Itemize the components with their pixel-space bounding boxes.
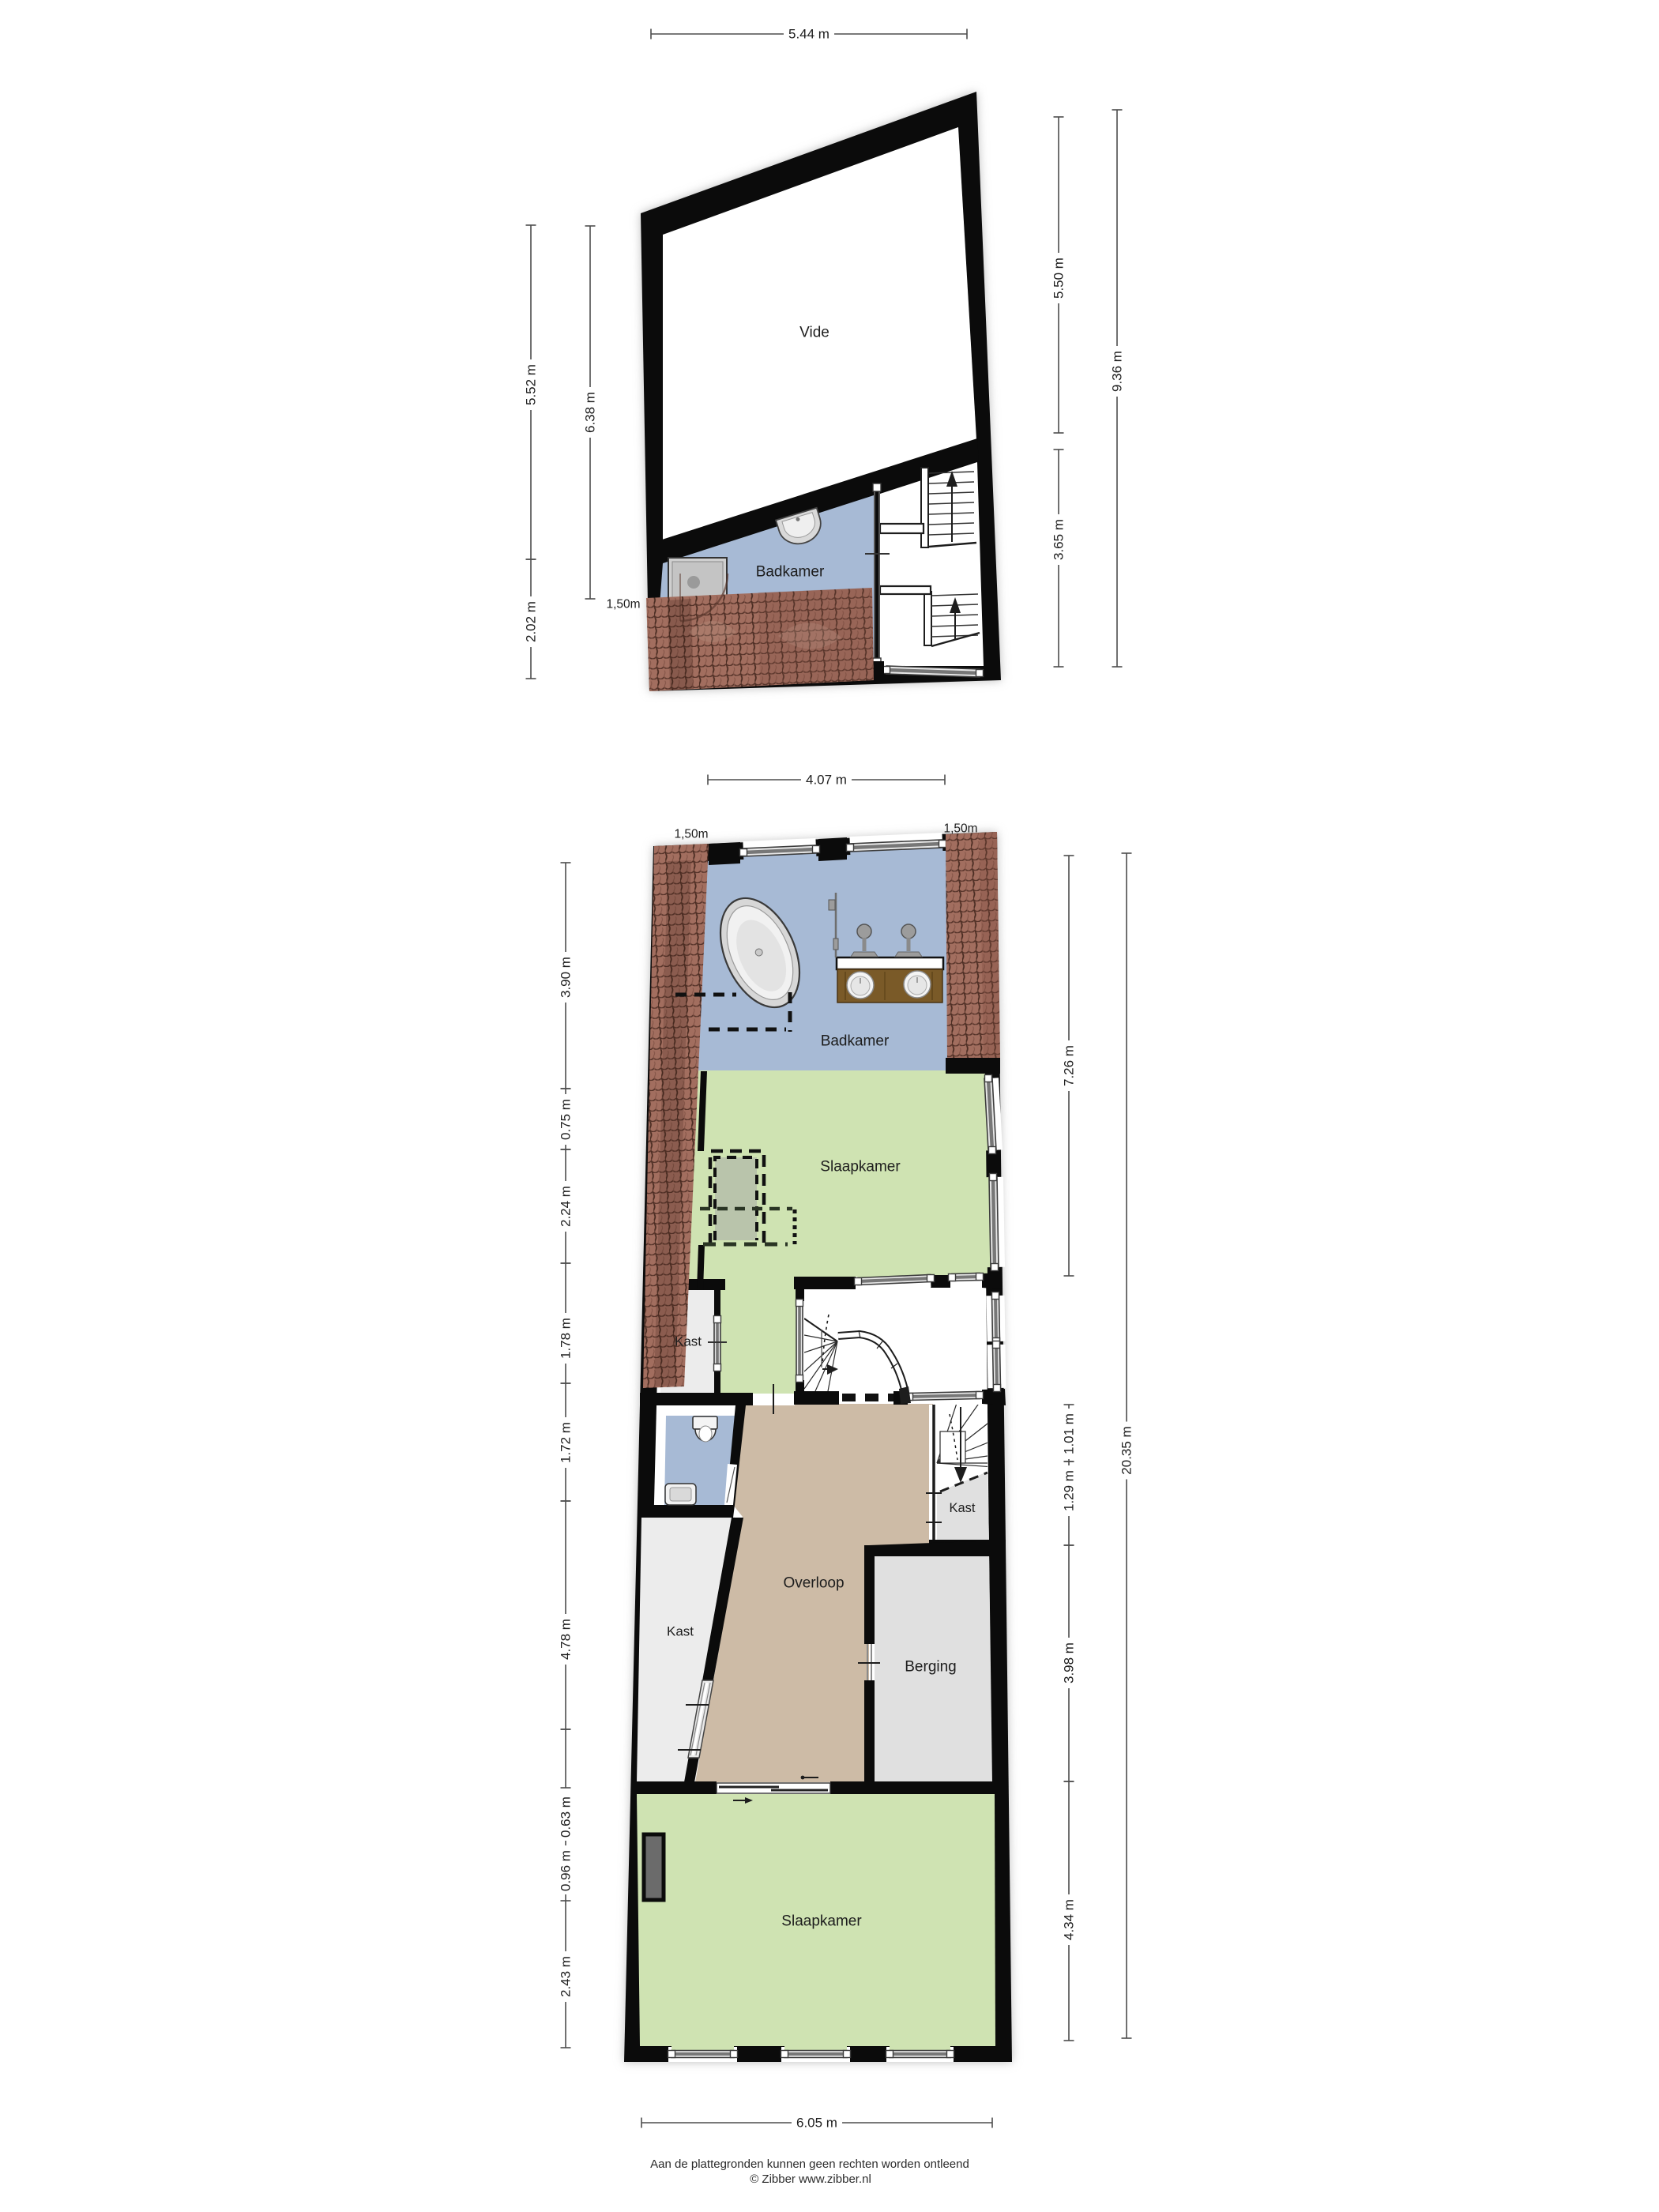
svg-text:Berging: Berging — [905, 1659, 957, 1676]
svg-text:5.52 m: 5.52 m — [524, 364, 539, 405]
svg-text:Vide: Vide — [799, 325, 829, 341]
svg-text:1,50m: 1,50m — [674, 828, 708, 841]
svg-text:Slaapkamer: Slaapkamer — [781, 1913, 862, 1930]
svg-text:3.98 m: 3.98 m — [1062, 1642, 1077, 1683]
svg-text:4.07 m: 4.07 m — [806, 773, 847, 788]
svg-text:Overloop: Overloop — [783, 1575, 844, 1592]
svg-text:0.63 m: 0.63 m — [559, 1796, 574, 1838]
svg-text:1,50m: 1,50m — [943, 822, 977, 836]
svg-text:2.43 m: 2.43 m — [559, 1956, 574, 1997]
svg-text:1.72 m: 1.72 m — [559, 1422, 574, 1463]
svg-text:© Zibber www.zibber.nl: © Zibber www.zibber.nl — [750, 2172, 871, 2186]
svg-text:1.01 m: 1.01 m — [1062, 1413, 1077, 1454]
svg-text:5.44 m: 5.44 m — [788, 27, 829, 42]
svg-text:9.36 m: 9.36 m — [1110, 351, 1125, 392]
svg-text:4.34 m: 4.34 m — [1062, 1899, 1077, 1940]
svg-text:3.65 m: 3.65 m — [1051, 519, 1066, 560]
svg-text:6.38 m: 6.38 m — [583, 392, 598, 433]
svg-text:5.50 m: 5.50 m — [1051, 258, 1066, 299]
svg-text:1,50m: 1,50m — [606, 598, 640, 611]
svg-text:Kast: Kast — [667, 1624, 694, 1639]
svg-text:Kast: Kast — [949, 1501, 975, 1515]
svg-text:Badkamer: Badkamer — [756, 564, 825, 581]
svg-text:3.90 m: 3.90 m — [559, 957, 574, 998]
svg-text:0.96 m: 0.96 m — [559, 1850, 574, 1891]
svg-text:Slaapkamer: Slaapkamer — [820, 1159, 901, 1176]
svg-text:Badkamer: Badkamer — [821, 1033, 890, 1050]
svg-text:0.75 m: 0.75 m — [559, 1099, 574, 1140]
svg-text:Kast: Kast — [675, 1334, 702, 1349]
svg-text:1.29 m: 1.29 m — [1062, 1470, 1077, 1511]
svg-text:Aan de plattegronden kunnen ge: Aan de plattegronden kunnen geen rechten… — [650, 2157, 969, 2171]
svg-text:20.35 m: 20.35 m — [1119, 1426, 1134, 1474]
svg-text:1.78 m: 1.78 m — [559, 1318, 574, 1359]
svg-text:2.24 m: 2.24 m — [559, 1186, 574, 1227]
svg-text:4.78 m: 4.78 m — [559, 1619, 574, 1660]
svg-text:6.05 m: 6.05 m — [796, 2116, 837, 2131]
svg-text:7.26 m: 7.26 m — [1062, 1045, 1077, 1086]
svg-text:2.02 m: 2.02 m — [524, 601, 539, 642]
